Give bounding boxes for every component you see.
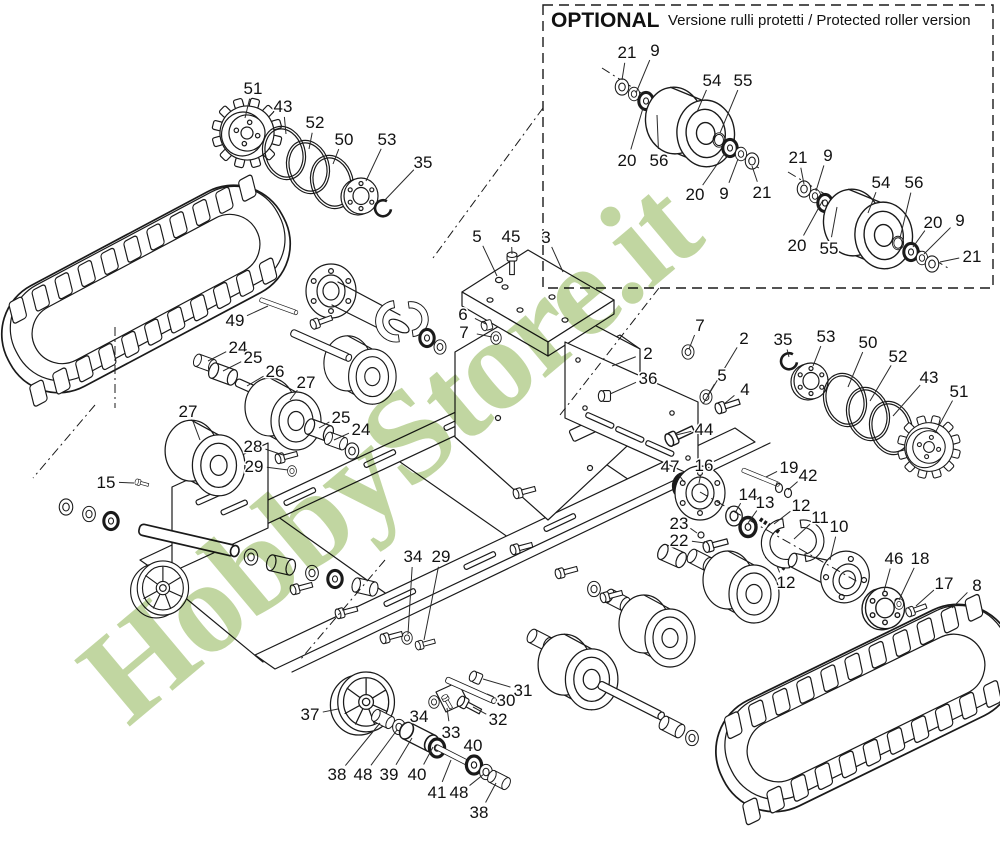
part-label-21: 21 — [618, 43, 637, 62]
leader-line-35 — [384, 170, 414, 201]
part-label-51: 51 — [950, 382, 969, 401]
part-label-43: 43 — [920, 368, 939, 387]
parts-diagram-page: OPTIONAL Versione rulli protetti / Prote… — [0, 0, 1000, 861]
part-label-21: 21 — [753, 183, 772, 202]
pin-49 — [259, 297, 298, 315]
part-label-37: 37 — [301, 705, 320, 724]
part-label-9: 9 — [955, 211, 964, 230]
leader-line-41 — [442, 760, 451, 782]
washer-34 — [429, 696, 440, 709]
part-label-40: 40 — [408, 765, 427, 784]
washer — [686, 730, 699, 745]
part-label-34: 34 — [410, 707, 429, 726]
part-label-47: 47 — [661, 457, 680, 476]
part-label-17: 17 — [935, 574, 954, 593]
leader-line-39 — [396, 738, 412, 765]
part-label-11: 11 — [811, 508, 829, 527]
part-label-10: 10 — [830, 517, 849, 536]
leader-line-15 — [119, 482, 134, 483]
leader-line-19 — [766, 471, 777, 477]
part-label-12: 12 — [792, 496, 811, 515]
disc-53 — [791, 363, 828, 400]
part-label-20: 20 — [686, 185, 705, 204]
part-label-50: 50 — [859, 333, 878, 352]
pin-19 — [741, 468, 780, 487]
washer — [59, 499, 73, 515]
bearing-13 — [740, 518, 756, 537]
leader-line-49 — [247, 306, 268, 316]
axle-flange — [306, 264, 356, 318]
leader-line-23 — [690, 528, 697, 533]
leader-line-21 — [940, 258, 959, 262]
part-label-5: 5 — [717, 366, 726, 385]
part-label-29: 29 — [432, 547, 451, 566]
leader-line-52 — [870, 365, 891, 401]
leader-line-9 — [816, 165, 824, 191]
ring-52 — [840, 382, 895, 445]
part-label-55: 55 — [820, 239, 839, 258]
part-label-20: 20 — [788, 236, 807, 255]
hub-10 — [781, 534, 876, 609]
part-label-22: 22 — [670, 531, 689, 550]
leader-line-24 — [208, 352, 226, 361]
part-label-9: 9 — [650, 41, 659, 60]
washer — [588, 581, 601, 596]
washer — [83, 506, 96, 521]
part-label-4: 4 — [740, 380, 749, 399]
part-label-27: 27 — [297, 373, 316, 392]
part-label-54: 54 — [872, 173, 891, 192]
bolt-32 — [456, 695, 483, 716]
part-label-45: 45 — [502, 227, 521, 246]
leader-line-22 — [692, 541, 705, 543]
part-label-56: 56 — [905, 173, 924, 192]
part-label-35: 35 — [414, 153, 433, 172]
leader-line-48 — [371, 730, 397, 765]
bolt-29 — [414, 637, 436, 651]
part-label-20: 20 — [924, 213, 943, 232]
leader-line-38 — [486, 783, 496, 803]
part-label-2: 2 — [739, 329, 748, 348]
part-label-8: 8 — [972, 576, 981, 595]
leader-line-53 — [813, 346, 821, 366]
bushing-38 — [486, 769, 512, 791]
leader-line-20 — [913, 231, 925, 247]
leader-line-9 — [636, 60, 650, 93]
part-label-40: 40 — [464, 736, 483, 755]
sprocket-51 — [891, 409, 967, 485]
nut-31 — [468, 670, 483, 685]
part-label-21: 21 — [789, 148, 808, 167]
leader-line-42 — [788, 482, 798, 490]
leader-line-43 — [284, 117, 286, 134]
part-label-16: 16 — [695, 456, 714, 475]
part-label-34: 34 — [404, 547, 423, 566]
washer-34 — [402, 632, 413, 645]
part-label-48: 48 — [354, 765, 373, 784]
protected-roller-assembly-right — [797, 181, 939, 275]
bolt-4 — [714, 396, 741, 414]
part-label-28: 28 — [244, 437, 263, 456]
part-label-27: 27 — [179, 402, 198, 421]
optional-title: OPTIONAL — [551, 9, 660, 32]
roller — [538, 634, 618, 710]
grease-fitting-15 — [134, 479, 149, 488]
part-label-19: 19 — [780, 458, 799, 477]
part-label-15: 15 — [97, 473, 116, 492]
leader-line-9 — [729, 159, 738, 183]
part-label-44: 44 — [695, 420, 714, 439]
roller — [619, 595, 695, 667]
part-label-53: 53 — [378, 130, 397, 149]
leader-line-48 — [470, 774, 484, 786]
part-label-2: 2 — [643, 344, 652, 363]
part-label-56: 56 — [650, 151, 669, 170]
rubber-track-left — [0, 166, 310, 412]
part-label-53: 53 — [817, 327, 836, 346]
roller — [703, 551, 779, 623]
part-label-5: 5 — [472, 227, 481, 246]
washer-7 — [682, 345, 694, 359]
bushing — [351, 577, 380, 597]
bearing — [104, 512, 118, 529]
part-label-43: 43 — [274, 97, 293, 116]
washer-18 — [895, 599, 904, 610]
leader-line-20 — [631, 108, 643, 149]
part-label-32: 32 — [489, 710, 508, 729]
part-label-51: 51 — [244, 79, 263, 98]
rubber-track-right — [697, 585, 1000, 831]
part-label-38: 38 — [328, 765, 347, 784]
leader-line-53 — [366, 149, 381, 181]
nut-36 — [598, 391, 610, 402]
part-label-26: 26 — [266, 362, 285, 381]
part-label-12: 12 — [777, 573, 796, 592]
part-label-54: 54 — [703, 71, 722, 90]
part-label-18: 18 — [911, 549, 930, 568]
part-label-21: 21 — [963, 247, 982, 266]
exploded-diagram: OPTIONAL Versione rulli protetti / Prote… — [0, 0, 1000, 861]
part-label-41: 41 — [428, 783, 447, 802]
leader-line-31 — [483, 679, 510, 687]
part-label-49: 49 — [226, 311, 245, 330]
ring-52 — [280, 135, 335, 198]
protected-roller-assembly-left — [615, 79, 759, 173]
disc-53 — [341, 178, 378, 215]
part-label-7: 7 — [695, 316, 704, 335]
part-label-33: 33 — [442, 723, 461, 742]
part-label-50: 50 — [335, 130, 354, 149]
part-label-31: 31 — [514, 681, 533, 700]
part-label-52: 52 — [889, 347, 908, 366]
part-label-38: 38 — [470, 803, 489, 822]
part-label-39: 39 — [380, 765, 399, 784]
part-label-9: 9 — [719, 184, 728, 203]
part-label-46: 46 — [885, 549, 904, 568]
part-label-42: 42 — [799, 466, 818, 485]
leader-line-18 — [899, 568, 914, 600]
ball-23 — [698, 532, 704, 538]
protected-roller-54 — [820, 183, 916, 274]
part-label-25: 25 — [244, 348, 263, 367]
sleeve — [657, 715, 687, 740]
part-label-55: 55 — [734, 71, 753, 90]
part-label-9: 9 — [823, 146, 832, 165]
leader-line-20 — [804, 200, 823, 235]
part-label-52: 52 — [306, 113, 325, 132]
part-label-35: 35 — [774, 330, 793, 349]
part-label-13: 13 — [756, 493, 775, 512]
part-label-48: 48 — [450, 783, 469, 802]
part-label-36: 36 — [639, 369, 658, 388]
leader-line-21 — [622, 63, 625, 80]
optional-subtitle: Versione rulli protetti / Protected roll… — [668, 12, 971, 29]
